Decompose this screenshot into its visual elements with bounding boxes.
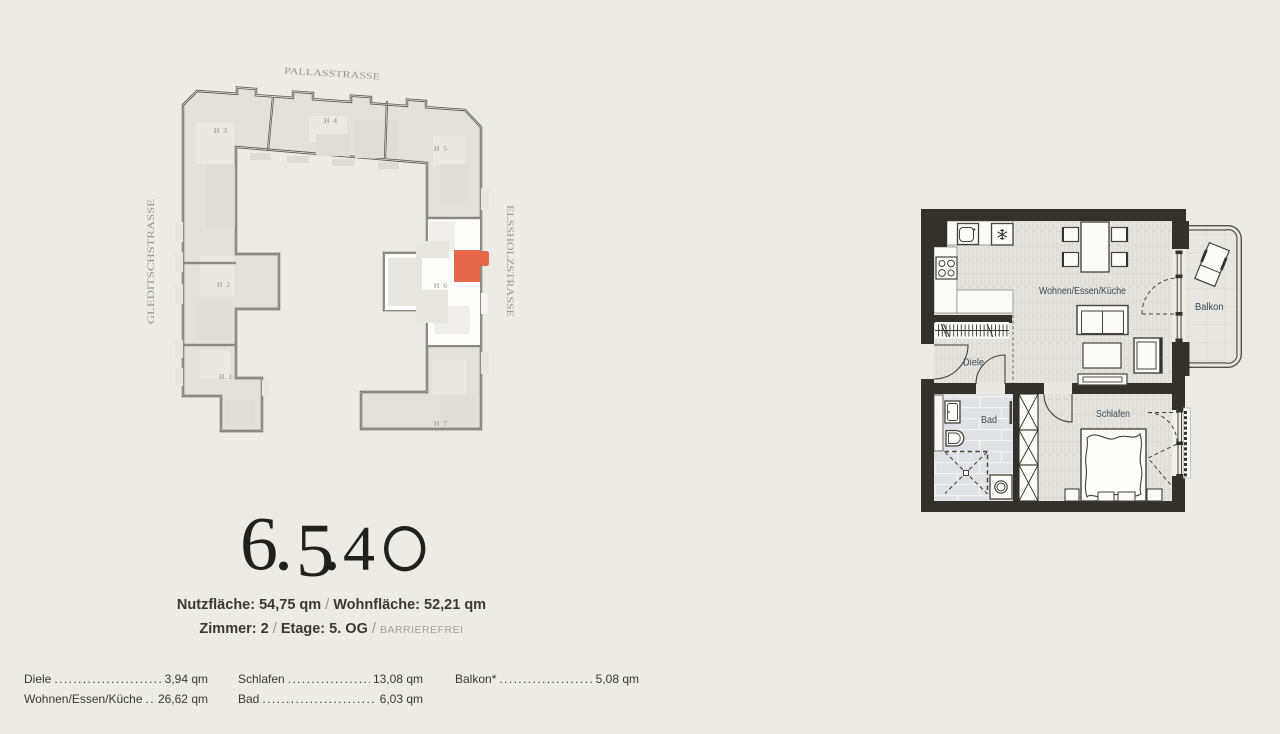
svg-text:H 3: H 3 (214, 126, 228, 135)
svg-text:H 7: H 7 (434, 419, 448, 428)
svg-text:.: . (274, 503, 293, 587)
svg-text:Wohnen/Essen/Küche: Wohnen/Essen/Küche (1039, 285, 1126, 297)
svg-text:6: 6 (240, 503, 278, 587)
svg-text:Diele: Diele (963, 357, 984, 369)
svg-text:H 4: H 4 (324, 116, 338, 125)
svg-text:GLEDITSCHSTRASSE: GLEDITSCHSTRASSE (146, 198, 156, 324)
svg-text:.: . (322, 503, 341, 587)
svg-text:4: 4 (343, 513, 375, 584)
svg-text:H 2: H 2 (217, 280, 231, 289)
svg-text:H 6: H 6 (434, 281, 448, 290)
svg-text:PALLASSTRASSE: PALLASSTRASSE (284, 66, 381, 82)
svg-text:H 5: H 5 (434, 144, 448, 153)
svg-text:H 1: H 1 (219, 372, 233, 381)
svg-text:ELSSHOLZSTRASSE: ELSSHOLZSTRASSE (505, 205, 515, 318)
svg-text:Bad: Bad (981, 414, 997, 426)
svg-text:Schlafen: Schlafen (1096, 408, 1130, 420)
svg-text:Balkon: Balkon (1195, 301, 1224, 313)
